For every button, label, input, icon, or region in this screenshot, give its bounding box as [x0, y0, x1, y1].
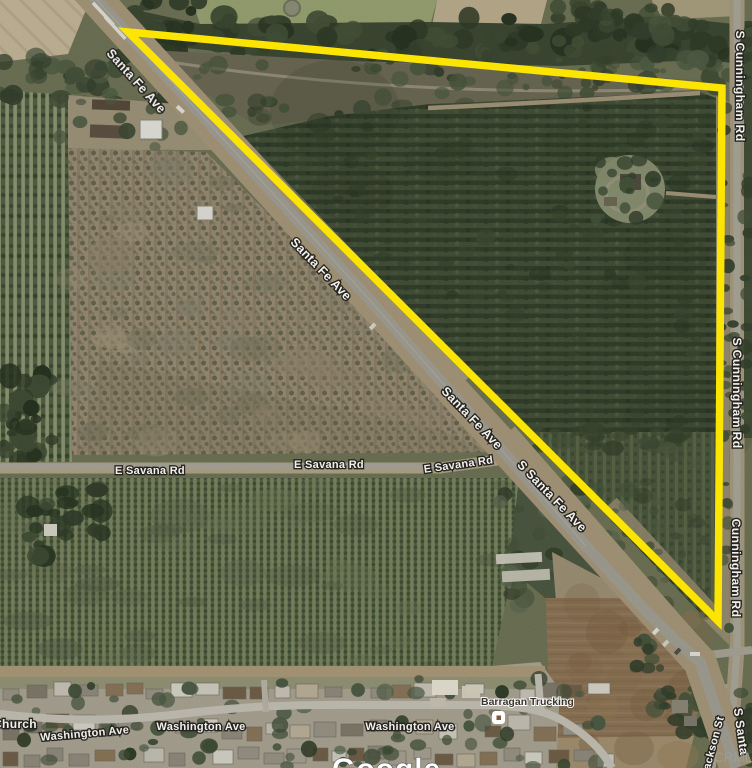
svg-text:Washington Ave: Washington Ave — [365, 721, 454, 733]
svg-text:S Cunningham Rd: S Cunningham Rd — [730, 337, 744, 448]
svg-text:Google: Google — [332, 753, 441, 768]
svg-text:S Cunningham Rd: S Cunningham Rd — [733, 30, 747, 141]
svg-text:CRMLS: CRMLS — [714, 750, 752, 765]
svg-text:E Savana Rd: E Savana Rd — [115, 465, 185, 477]
svg-text:Barragan Trucking: Barragan Trucking — [481, 696, 574, 708]
svg-text:E Savana Rd: E Savana Rd — [294, 459, 364, 471]
svg-text:Cunningham Rd: Cunningham Rd — [729, 519, 743, 618]
svg-text:Church: Church — [0, 717, 37, 731]
svg-text:Washington Ave: Washington Ave — [156, 721, 245, 733]
